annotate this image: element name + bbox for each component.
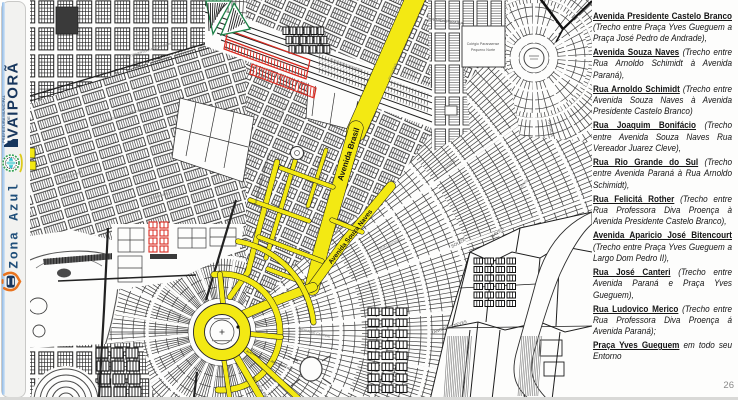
svg-text:Pequeno Norte: Pequeno Norte xyxy=(471,48,495,52)
svg-text:Colégio Paranaense: Colégio Paranaense xyxy=(467,42,500,46)
